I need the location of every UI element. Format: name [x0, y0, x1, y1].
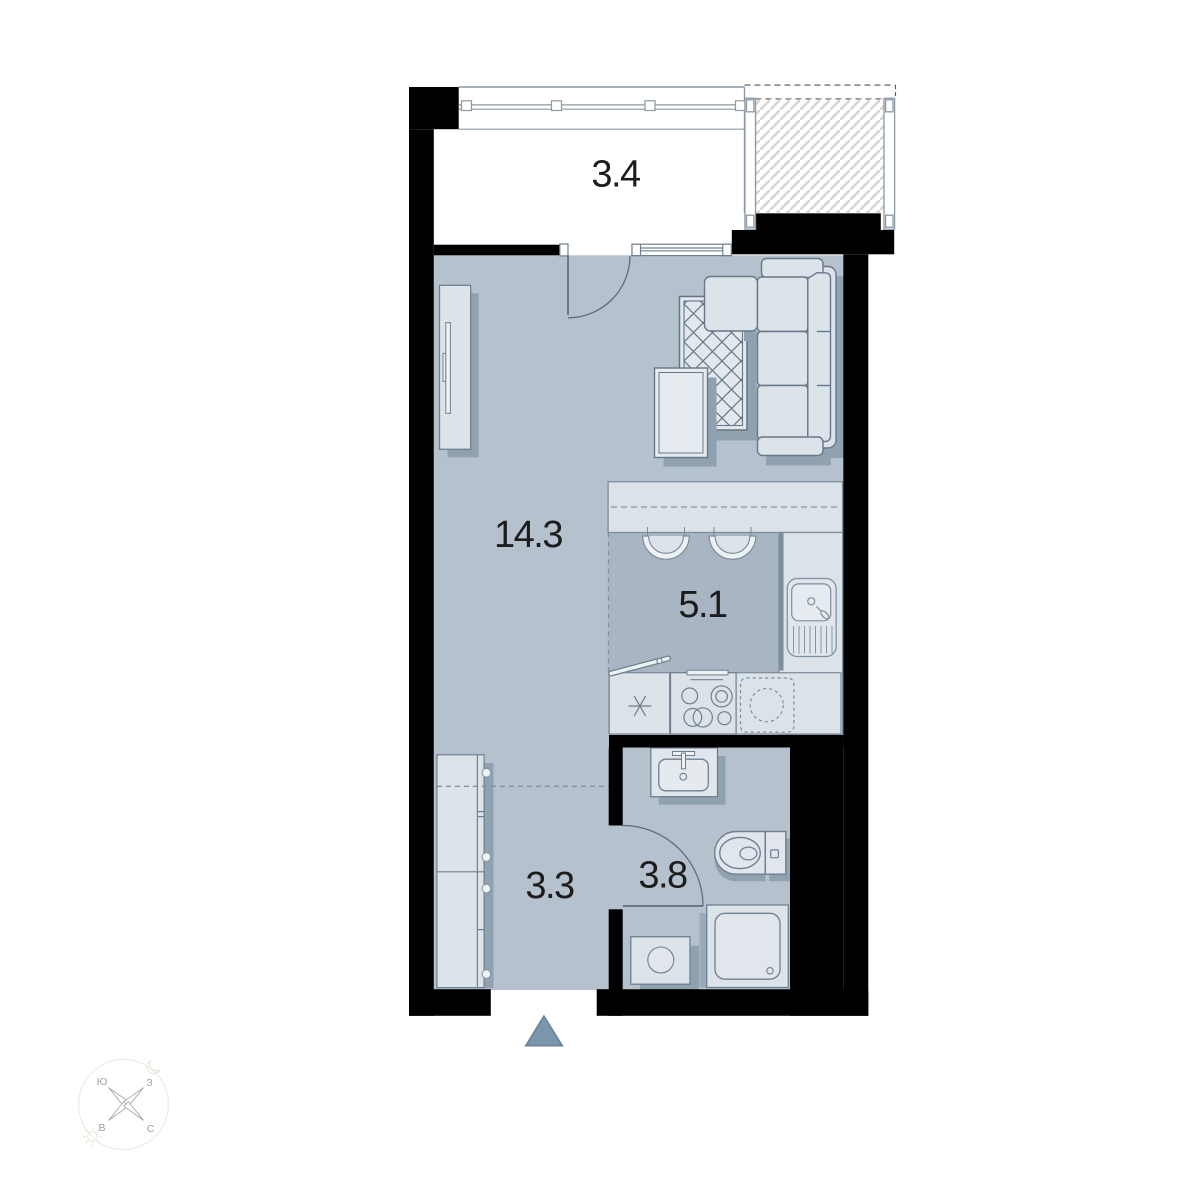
svg-text:Ю: Ю — [97, 1076, 108, 1088]
svg-text:С: С — [147, 1123, 155, 1135]
svg-text:3.8: 3.8 — [638, 855, 687, 897]
svg-text:З: З — [146, 1077, 152, 1089]
svg-text:3.3: 3.3 — [525, 865, 574, 907]
svg-text:В: В — [98, 1122, 105, 1134]
svg-text:3.4: 3.4 — [591, 154, 641, 196]
svg-text:14.3: 14.3 — [494, 514, 562, 556]
svg-text:5.1: 5.1 — [678, 584, 727, 626]
